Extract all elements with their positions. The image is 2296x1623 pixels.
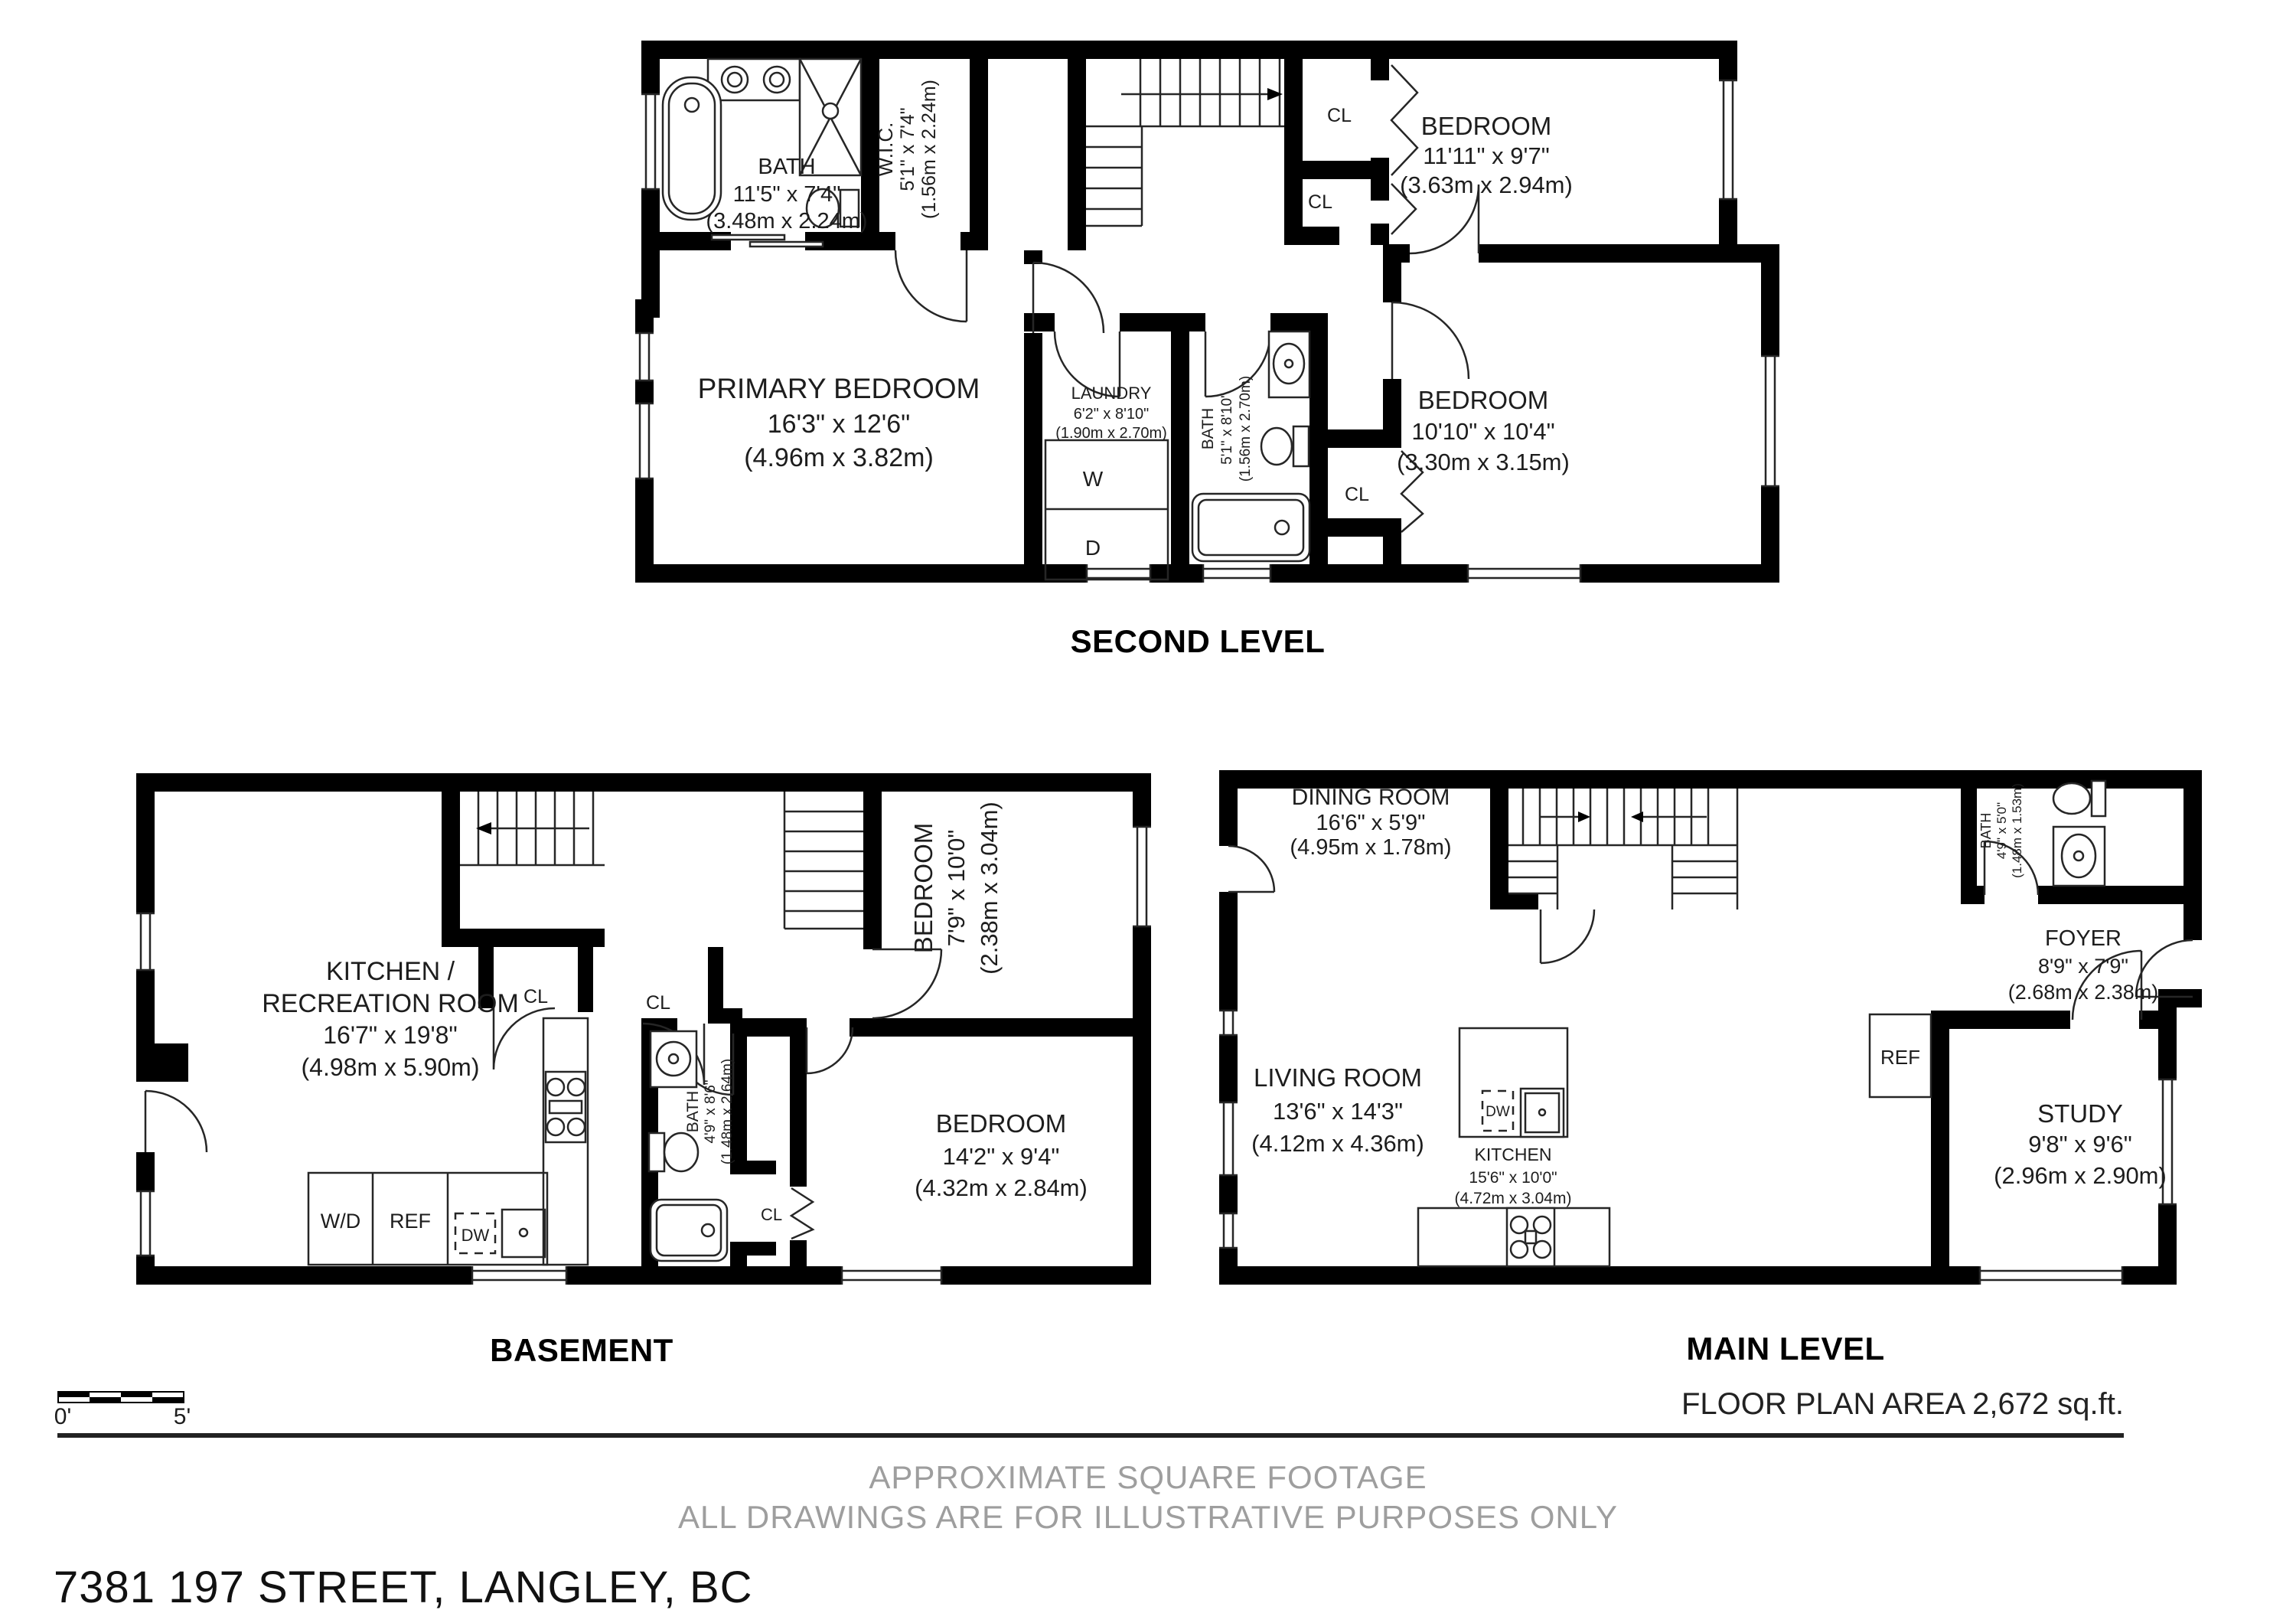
room-dims-metric: (3.48m x 2.24m) xyxy=(706,209,867,233)
room-dims-metric: (1.56m x 2.70m) xyxy=(1238,376,1254,482)
second-level-caption: SECOND LEVEL xyxy=(968,623,1427,660)
room-dims: 16'6" x 5'9" xyxy=(1316,811,1426,835)
floor-plan-area-text: FLOOR PLAN AREA 2,672 sq.ft. xyxy=(1358,1387,2124,1422)
room-dims-metric: (2.96m x 2.90m) xyxy=(1994,1162,2167,1189)
stove-icon xyxy=(546,1072,585,1142)
room-dims: 11'5" x 7'4" xyxy=(733,182,841,207)
room-label: FOYER xyxy=(2045,926,2122,951)
room-dims: 16'3" x 12'6" xyxy=(768,410,910,439)
vanity-sink-icon xyxy=(708,59,800,100)
room-label: BATH xyxy=(1978,813,1994,849)
room-label: RECREATION ROOM xyxy=(262,989,519,1018)
room-dims-metric: (4.12m x 4.36m) xyxy=(1251,1130,1424,1157)
toilet-icon xyxy=(649,1133,698,1171)
dishwasher-label: DW xyxy=(461,1226,490,1245)
room-label: KITCHEN / xyxy=(326,957,455,986)
room-label: BEDROOM xyxy=(1421,112,1552,140)
room-label: BEDROOM xyxy=(909,823,938,954)
main-level-plan: DINING ROOM 16'6" x 5'9" (4.95m x 1.78m)… xyxy=(1213,766,2242,1301)
room-dims-metric: (2.68m x 2.38m) xyxy=(2008,981,2159,1004)
dishwasher-label: DW xyxy=(1486,1104,1510,1120)
closet-door-zigzag xyxy=(791,1188,813,1239)
room-dims-metric: (4.95m x 1.78m) xyxy=(1290,835,1451,860)
room-dims-metric: (3.63m x 2.94m) xyxy=(1400,171,1573,198)
closet-label: CL xyxy=(1327,105,1352,126)
closet-label: CL xyxy=(1308,191,1332,213)
room-label: LIVING ROOM xyxy=(1254,1063,1422,1092)
room-dims: 10'10" x 10'4" xyxy=(1411,418,1554,445)
closet-label: CL xyxy=(761,1205,782,1224)
fridge-label: REF xyxy=(1880,1046,1920,1069)
stairs-icon xyxy=(460,792,863,929)
room-dims-metric: (1.90m x 2.70m) xyxy=(1055,425,1167,442)
room-dims-metric: (4.98m x 5.90m) xyxy=(302,1053,480,1081)
room-label: BEDROOM xyxy=(1418,386,1549,414)
room-dims-metric: (1.56m x 2.24m) xyxy=(918,80,940,219)
room-dims: 11'11" x 9'7" xyxy=(1423,142,1549,169)
second-level-plan: BATH 11'5" x 7'4" (3.48m x 2.24m) W.I.C.… xyxy=(635,34,1783,605)
room-label: LAUNDRY xyxy=(1071,384,1152,403)
room-dims: 6'2" x 8'10" xyxy=(1074,406,1150,423)
room-dims-metric: (3.30m x 3.15m) xyxy=(1397,449,1570,475)
property-address: 7381 197 STREET, LANGLEY, BC xyxy=(54,1562,753,1613)
room-dims: 15'6" x 10'0" xyxy=(1469,1169,1557,1187)
sink-icon xyxy=(651,1031,696,1087)
scale-start-label: 0' xyxy=(54,1404,71,1429)
bathtub-icon xyxy=(663,77,721,220)
sink-icon xyxy=(1269,331,1309,397)
closet-label: CL xyxy=(1345,484,1369,505)
stove-icon xyxy=(1507,1208,1554,1266)
room-label: BEDROOM xyxy=(936,1109,1067,1138)
room-dims-metric: (1.48m x 1.53m) xyxy=(2010,783,2024,878)
basement-plan: KITCHEN / RECREATION ROOM 16'7" x 19'8" … xyxy=(130,766,1202,1301)
room-dims: 4'9" x 8'6" xyxy=(703,1079,719,1143)
bathtub-icon xyxy=(1192,494,1309,561)
washer-dryer-label: W/D xyxy=(321,1210,360,1233)
room-dims: 8'9" x 7'9" xyxy=(2038,955,2128,978)
room-label: DINING ROOM xyxy=(1292,785,1450,810)
room-dims: 4'9" x 5'0" xyxy=(1994,802,2009,859)
room-dims: 5'1" x 8'10" xyxy=(1219,393,1235,465)
room-label: KITCHEN xyxy=(1475,1145,1552,1164)
room-dims: 13'6" x 14'3" xyxy=(1273,1098,1403,1125)
stairs-icon xyxy=(1508,789,1737,909)
room-dims: 14'2" x 9'4" xyxy=(943,1143,1060,1170)
room-dims: 9'8" x 9'6" xyxy=(2028,1131,2132,1158)
closet-label: CL xyxy=(523,986,548,1007)
toilet-icon xyxy=(2053,781,2105,816)
floor-plan-page: BATH 11'5" x 7'4" (3.48m x 2.24m) W.I.C.… xyxy=(0,0,2296,1623)
basement-caption: BASEMENT xyxy=(352,1332,811,1369)
room-dims: 7'9" x 10'0" xyxy=(943,830,970,947)
room-label: W.I.C. xyxy=(874,122,897,177)
sink-icon xyxy=(2053,827,2105,886)
main-level-caption: MAIN LEVEL xyxy=(1556,1331,2015,1367)
room-dims-metric: (1.48m x 2.64m) xyxy=(719,1059,735,1164)
room-dims: 5'1" x 7'4" xyxy=(897,107,918,191)
room-label: BATH xyxy=(1199,408,1217,449)
room-label: BATH xyxy=(758,155,815,179)
scale-bar: 0' 5' xyxy=(54,1387,214,1436)
toilet-icon xyxy=(1261,426,1309,466)
room-dims-metric: (2.38m x 3.04m) xyxy=(976,802,1003,975)
closet-label: CL xyxy=(646,992,670,1014)
room-dims: 16'7" x 19'8" xyxy=(323,1021,458,1049)
disclaimer-line-1: APPROXIMATE SQUARE FOOTAGE xyxy=(0,1459,2296,1496)
stairs-icon xyxy=(1086,59,1284,226)
room-dims-metric: (4.96m x 3.82m) xyxy=(744,443,934,472)
dryer-label: D xyxy=(1085,536,1101,560)
room-label: BATH xyxy=(684,1091,702,1132)
footer-divider xyxy=(57,1433,2124,1438)
washer-label: W xyxy=(1083,467,1104,491)
washer-dryer-box xyxy=(1045,440,1168,580)
bathtub-icon xyxy=(651,1200,727,1261)
room-label: PRIMARY BEDROOM xyxy=(698,373,980,404)
room-dims-metric: (4.72m x 3.04m) xyxy=(1455,1190,1572,1207)
room-dims-metric: (4.32m x 2.84m) xyxy=(915,1174,1088,1201)
scale-end-label: 5' xyxy=(174,1404,191,1429)
disclaimer-line-2: ALL DRAWINGS ARE FOR ILLUSTRATIVE PURPOS… xyxy=(0,1499,2296,1536)
room-label: STUDY xyxy=(2037,1099,2123,1128)
fridge-label: REF xyxy=(390,1210,431,1233)
kitchen-island xyxy=(1459,1028,1567,1137)
